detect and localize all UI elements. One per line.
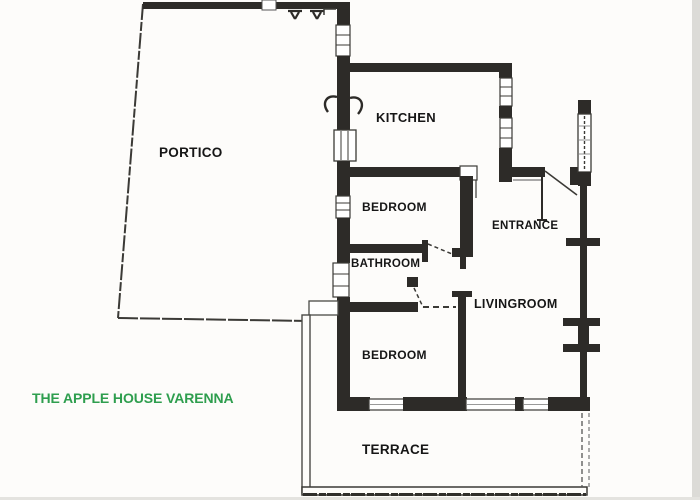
scan-edge-right bbox=[692, 0, 700, 500]
room-label-livingroom: LIVINGROOM bbox=[474, 298, 558, 311]
terrace-left-edge bbox=[302, 315, 310, 493]
plan-title: THE APPLE HOUSE VARENNA bbox=[32, 390, 234, 406]
bathroom-top-wall bbox=[337, 244, 424, 253]
kitchen-walls bbox=[337, 63, 512, 198]
window-symbol bbox=[500, 118, 512, 148]
bedroom1-walls bbox=[460, 176, 473, 250]
hatched-window-symbol bbox=[578, 114, 591, 172]
door-hook-icon bbox=[350, 97, 362, 114]
room-label-kitchen: KITCHEN bbox=[376, 111, 436, 124]
portico-outline bbox=[118, 4, 309, 321]
window-symbol bbox=[466, 399, 518, 410]
window-box-symbol bbox=[334, 130, 356, 161]
window-symbol bbox=[523, 399, 549, 410]
entrance-top-wall bbox=[499, 167, 545, 177]
window-symbol bbox=[369, 399, 404, 410]
bedroom2-top-wall bbox=[337, 302, 418, 312]
right-house-wall bbox=[563, 100, 600, 411]
kitchen-top-wall bbox=[345, 63, 512, 72]
terrace-connector-box bbox=[309, 301, 338, 315]
vent-mark-icon bbox=[288, 11, 302, 19]
room-label-bathroom: BATHROOM bbox=[351, 259, 420, 271]
entrance-walls bbox=[499, 167, 590, 220]
wall-junction-tick bbox=[566, 238, 600, 246]
bedroom1-right-wall bbox=[460, 176, 473, 250]
room-label-terrace: TERRACE bbox=[362, 443, 429, 457]
room-label-bedroom-2: BEDROOM bbox=[362, 349, 427, 361]
room-label-entrance: ENTRANCE bbox=[492, 221, 558, 233]
kitchen-bottom-wall bbox=[337, 167, 462, 177]
portico-left-wall bbox=[118, 4, 143, 318]
livingroom-left-wall bbox=[458, 296, 466, 399]
portico-bottom-wall bbox=[118, 318, 309, 321]
bedroom2-livingroom-walls bbox=[337, 291, 472, 399]
floor-plan-image: PORTICO KITCHEN BEDROOM ENTRANCE BATHROO… bbox=[0, 0, 700, 500]
top-wall bbox=[143, 0, 350, 19]
door-jamb bbox=[422, 240, 428, 262]
door-swing bbox=[428, 244, 452, 254]
window-symbol bbox=[500, 78, 512, 106]
vent-mark-icon bbox=[310, 11, 324, 19]
window-symbol bbox=[336, 25, 350, 56]
room-label-bedroom-1: BEDROOM bbox=[362, 201, 427, 213]
door-hook-icon bbox=[325, 96, 337, 112]
floor-plan-drawing bbox=[0, 0, 700, 500]
room-label-portico: PORTICO bbox=[159, 146, 223, 160]
top-wall-opening bbox=[262, 0, 276, 10]
window-symbol bbox=[333, 263, 349, 297]
bottom-house-wall bbox=[337, 397, 590, 411]
corner-hook-mark bbox=[324, 9, 336, 15]
window-symbol bbox=[336, 196, 350, 218]
wall-step bbox=[407, 277, 418, 287]
french-window-symbol bbox=[563, 318, 600, 352]
